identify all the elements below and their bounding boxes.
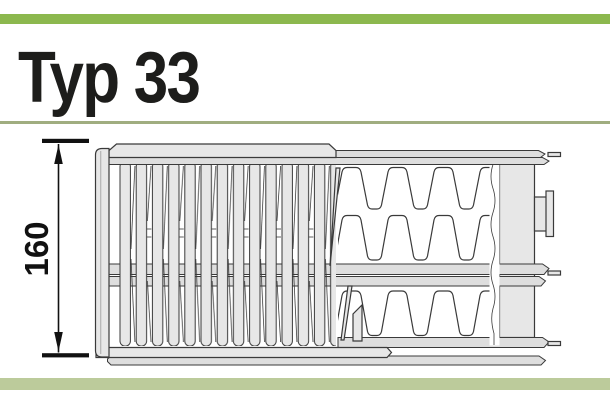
top-header-band-front [109,144,336,158]
dimension-bottom-cap [42,353,89,357]
dimension-arrow-top [54,145,63,165]
bottom-header-band [338,338,549,348]
convector-fin-row-middle [338,213,496,262]
top-header-band-lower [109,158,549,165]
bottom-front-rail [96,348,392,358]
convector-fin-row-upper [338,165,496,211]
connection-flange [546,191,554,237]
middle-header-pin [548,271,561,275]
radiator-cross-section-diagram: 160 [0,0,610,401]
dimension-label: 160 [18,221,55,276]
dimension-annotation: 160 [18,139,89,358]
page: Typ 33 [0,0,610,401]
rear-panel [500,164,535,338]
bottom-header-pin [548,342,561,346]
convector-slat-grid [119,161,336,346]
top-header-band-rear [336,151,545,158]
dimension-top-cap [42,139,89,143]
front-panel [96,149,110,358]
top-header-pin [548,153,561,157]
dimension-arrow-bottom [54,332,63,352]
